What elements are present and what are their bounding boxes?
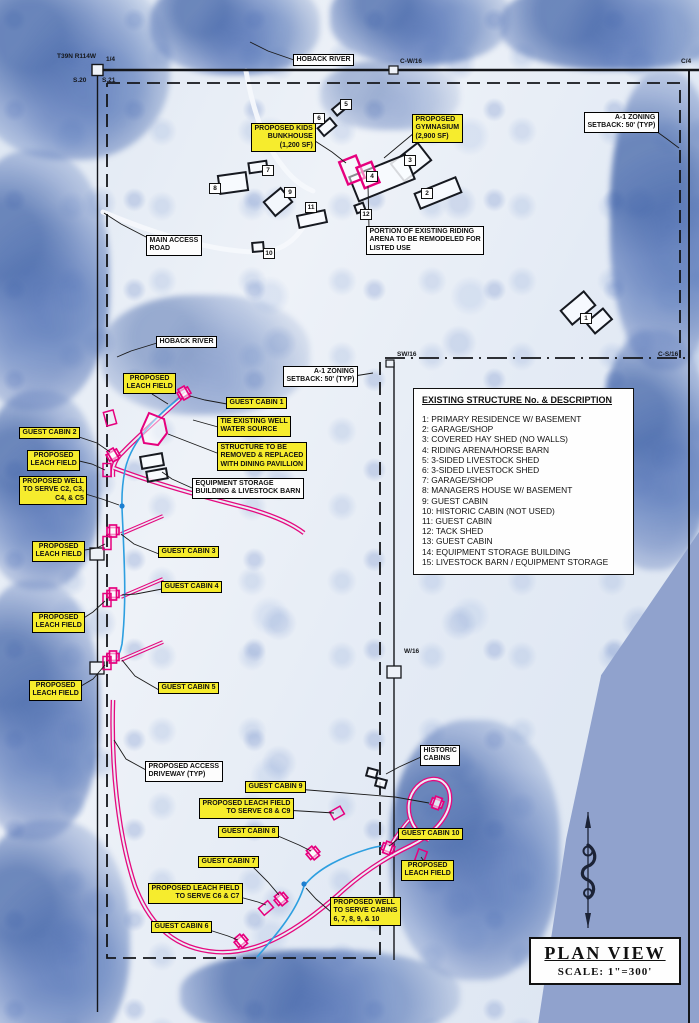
label-guest-cabin-8: GUEST CABIN 8 (218, 826, 279, 838)
label-proposed-leach-field-3: PROPOSED LEACH FIELD (32, 541, 85, 562)
section-corner-text: C-W/16 (400, 58, 422, 65)
structure-marker-11: 11 (305, 202, 317, 213)
legend-item: 2: GARAGE/SHOP (422, 424, 625, 434)
structure-marker-8: 8 (209, 183, 221, 194)
label-a1-zoning-mid: A-1 ZONING SETBACK: 50' (TYP) (283, 366, 358, 387)
legend-item: 15: LIVESTOCK BARN / EQUIPMENT STORAGE (422, 557, 625, 567)
label-hoback-river-mid: HOBACK RIVER (156, 336, 217, 348)
structure-marker-4: 4 (366, 171, 378, 182)
label-tie-existing-well: TIE EXISTING WELL WATER SOURCE (217, 416, 291, 437)
structure-marker-2: 2 (421, 188, 433, 199)
section-corner-text: C/4 (681, 58, 691, 65)
section-corner-text: T39N R114W (57, 53, 96, 60)
label-leach-c6-c7: PROPOSED LEACH FIELD TO SERVE C6 & C7 (148, 883, 243, 904)
site-plan-map: HOBACK RIVERPROPOSED KIDS BUNKHOUSE (1,2… (0, 0, 699, 1023)
label-guest-cabin-9: GUEST CABIN 9 (245, 781, 306, 793)
legend-item: 8: MANAGERS HOUSE W/ BASEMENT (422, 485, 625, 495)
legend-item: 4: RIDING ARENA/HORSE BARN (422, 445, 625, 455)
label-guest-cabin-1: GUEST CABIN 1 (226, 397, 287, 409)
label-proposed-well-6-10: PROPOSED WELL TO SERVE CABINS 6, 7, 8, 9… (330, 897, 401, 926)
label-guest-cabin-3: GUEST CABIN 3 (158, 546, 219, 558)
label-proposed-leach-field-10: PROPOSED LEACH FIELD (401, 860, 454, 881)
legend-item: 7: GARAGE/SHOP (422, 475, 625, 485)
label-proposed-well-c2-c5: PROPOSED WELL TO SERVE C2, C3, C4, & C5 (19, 476, 87, 505)
structure-marker-10: 10 (263, 248, 275, 259)
plan-scale: SCALE: 1"=300' (535, 966, 675, 978)
legend-item: 14: EQUIPMENT STORAGE BUILDING (422, 547, 625, 557)
section-corner-text: SW/16 (397, 351, 417, 358)
plan-title: PLAN VIEW (535, 943, 675, 964)
label-proposed-leach-field-2: PROPOSED LEACH FIELD (27, 450, 80, 471)
legend-items: 1: PRIMARY RESIDENCE W/ BASEMENT2: GARAG… (422, 414, 625, 567)
section-corner-text: S.21 (102, 77, 115, 84)
legend-item: 10: HISTORIC CABIN (NOT USED) (422, 506, 625, 516)
label-guest-cabin-6: GUEST CABIN 6 (151, 921, 212, 933)
label-guest-cabin-10: GUEST CABIN 10 (398, 828, 463, 840)
label-equipment-storage: EQUIPMENT STORAGE BUILDING & LIVESTOCK B… (192, 478, 304, 499)
label-guest-cabin-2: GUEST CABIN 2 (19, 427, 80, 439)
legend-item: 6: 3-SIDED LIVESTOCK SHED (422, 465, 625, 475)
label-guest-cabin-5: GUEST CABIN 5 (158, 682, 219, 694)
legend-item: 12: TACK SHED (422, 526, 625, 536)
structure-marker-1: 1 (580, 313, 592, 324)
label-leach-c8-c9: PROPOSED LEACH FIELD TO SERVE C8 & C9 (199, 798, 294, 819)
plan-title-box: PLAN VIEW SCALE: 1"=300' (529, 937, 681, 985)
label-main-access-road: MAIN ACCESS ROAD (146, 235, 202, 256)
structure-marker-5: 5 (340, 99, 352, 110)
label-proposed-gymnasium: PROPOSED GYMNASIUM (2,900 SF) (412, 114, 463, 143)
label-proposed-leach-field-1: PROPOSED LEACH FIELD (123, 373, 176, 394)
label-riding-arena-note: PORTION OF EXISTING RIDING ARENA TO BE R… (366, 226, 484, 255)
label-a1-zoning-top: A-1 ZONING SETBACK: 50' (TYP) (584, 112, 659, 133)
legend-item: 11: GUEST CABIN (422, 516, 625, 526)
label-hoback-river-top: HOBACK RIVER (293, 54, 354, 66)
structure-marker-7: 7 (262, 165, 274, 176)
structure-marker-9: 9 (284, 187, 296, 198)
legend-item: 9: GUEST CABIN (422, 496, 625, 506)
legend-title: EXISTING STRUCTURE No. & DESCRIPTION (422, 395, 625, 405)
legend-item: 3: COVERED HAY SHED (NO WALLS) (422, 434, 625, 444)
label-proposed-access-driveway: PROPOSED ACCESS DRIVEWAY (TYP) (145, 761, 223, 782)
legend-item: 5: 3-SIDED LIVESTOCK SHED (422, 455, 625, 465)
label-guest-cabin-7: GUEST CABIN 7 (198, 856, 259, 868)
legend-item: 1: PRIMARY RESIDENCE W/ BASEMENT (422, 414, 625, 424)
section-corner-text: C-S/16 (658, 351, 678, 358)
legend-item: 13: GUEST CABIN (422, 536, 625, 546)
label-proposed-leach-field-5: PROPOSED LEACH FIELD (29, 680, 82, 701)
section-corner-text: 1/4 (106, 56, 115, 63)
label-proposed-leach-field-4: PROPOSED LEACH FIELD (32, 612, 85, 633)
legend-box: EXISTING STRUCTURE No. & DESCRIPTION 1: … (413, 388, 634, 575)
section-corner-text: S.20 (73, 77, 86, 84)
section-corner-text: W/16 (404, 648, 419, 655)
label-proposed-kids-bunkhouse: PROPOSED KIDS BUNKHOUSE (1,200 SF) (251, 123, 316, 152)
label-structure-to-be-removed: STRUCTURE TO BE REMOVED & REPLACED WITH … (217, 442, 307, 471)
label-guest-cabin-4: GUEST CABIN 4 (161, 581, 222, 593)
structure-marker-6: 6 (313, 113, 325, 124)
label-historic-cabins: HISTORIC CABINS (420, 745, 460, 766)
structure-marker-3: 3 (404, 155, 416, 166)
structure-marker-12: 12 (360, 209, 372, 220)
